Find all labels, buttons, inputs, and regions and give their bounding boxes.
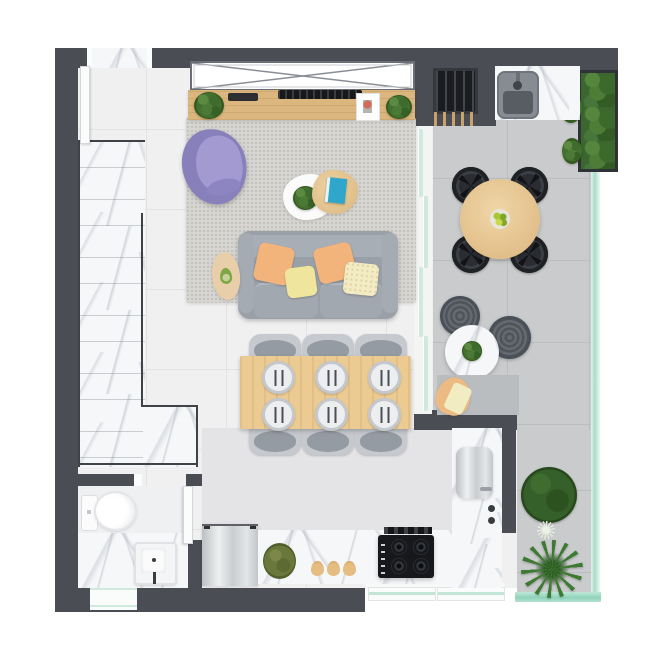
avocado [219, 267, 233, 284]
marble-stair-landing [143, 405, 198, 467]
sliding-glass-door [414, 126, 432, 414]
tv-top-view [278, 90, 362, 99]
glass-pane [423, 336, 428, 411]
cutlery [380, 370, 389, 386]
wall-bathroom-right [188, 540, 202, 588]
dishwasher [202, 524, 258, 586]
hedge-planter [578, 70, 618, 172]
cooktop [378, 535, 434, 578]
glass-railing-right [591, 172, 600, 592]
counter-knob [488, 517, 495, 524]
place-setting [262, 361, 295, 394]
hinge [250, 526, 256, 529]
bathroom-sliding-door [183, 486, 193, 544]
cutlery [274, 370, 283, 386]
place-setting [315, 361, 348, 394]
burner [413, 539, 429, 555]
bathroom-sink [134, 542, 177, 585]
place-setting [368, 361, 401, 394]
door-jamb [87, 48, 92, 68]
appliance-handle [480, 487, 492, 491]
kitchen-glass-window [437, 587, 505, 601]
burner [391, 558, 407, 574]
steel-appliance [456, 447, 493, 499]
pillow-cream [342, 261, 379, 296]
hedge-spill [562, 138, 582, 164]
marble-staircase [78, 140, 145, 467]
pear [343, 561, 356, 576]
pear [311, 561, 324, 576]
glass-pane [423, 196, 428, 268]
flush-button [87, 510, 91, 514]
sofa-arm-right [382, 233, 398, 313]
place-setting [315, 398, 348, 431]
stair-bottom-edge [78, 463, 198, 465]
gray-sofa [238, 231, 398, 319]
books-stack [228, 93, 258, 101]
pillow-yellow [284, 265, 318, 299]
chair-seat [254, 431, 296, 452]
burner [413, 558, 429, 574]
counter-knob [488, 505, 495, 512]
vent-strip [384, 527, 432, 534]
picture-card [356, 93, 380, 121]
pear [327, 561, 340, 576]
stair-inner-edge [141, 213, 143, 407]
tv-sideboard [188, 90, 415, 120]
place-setting [368, 398, 401, 431]
sideboard-plant [386, 95, 412, 119]
counter-plant [263, 543, 296, 579]
side-table-plant [462, 341, 482, 361]
white-door-leaf [80, 66, 90, 144]
cutlery [327, 407, 336, 423]
chair-seat [307, 431, 349, 452]
fern-plant [521, 467, 577, 523]
cutlery [380, 407, 389, 423]
wall-left [55, 48, 78, 612]
blue-book [325, 177, 348, 204]
sofa-arm-left [238, 233, 254, 313]
wood-coffee-table [312, 170, 358, 214]
drain-dot [152, 558, 156, 562]
window-cross [190, 61, 415, 91]
kitchen-glass-window [368, 587, 436, 601]
hinge [204, 526, 210, 529]
chair-seat [360, 431, 402, 452]
outdoor-sink [497, 71, 539, 119]
entry-door-bottom [90, 588, 137, 610]
wall-balcony-vertical [501, 430, 516, 533]
glass-pane [418, 129, 423, 197]
round-balcony-table [460, 179, 540, 259]
glass-pane [418, 267, 423, 337]
cutlery [327, 370, 336, 386]
control-buttons [381, 540, 385, 574]
wall-bathroom-stub [186, 474, 202, 486]
floor-plan [0, 0, 650, 650]
dandelion-plant [537, 521, 555, 539]
bathroom-jamb [134, 474, 142, 486]
skewer-handles [434, 112, 478, 126]
place-setting [262, 398, 295, 431]
palm-plant [521, 540, 583, 598]
bbq-grill [433, 68, 478, 114]
entry-threshold-top [87, 48, 152, 68]
burner [391, 539, 407, 555]
sink-basin [503, 91, 533, 114]
round-marble-side-table [445, 325, 499, 379]
wall-top-mid [152, 48, 193, 68]
sideboard-plant [194, 92, 224, 119]
picture-art [363, 100, 372, 113]
fruit-bowl [490, 209, 510, 229]
sink-faucet [153, 572, 156, 584]
wall-bathroom-top [78, 474, 134, 486]
toilet-bowl [94, 491, 137, 531]
faucet-head [513, 81, 522, 90]
cutlery [274, 407, 283, 423]
